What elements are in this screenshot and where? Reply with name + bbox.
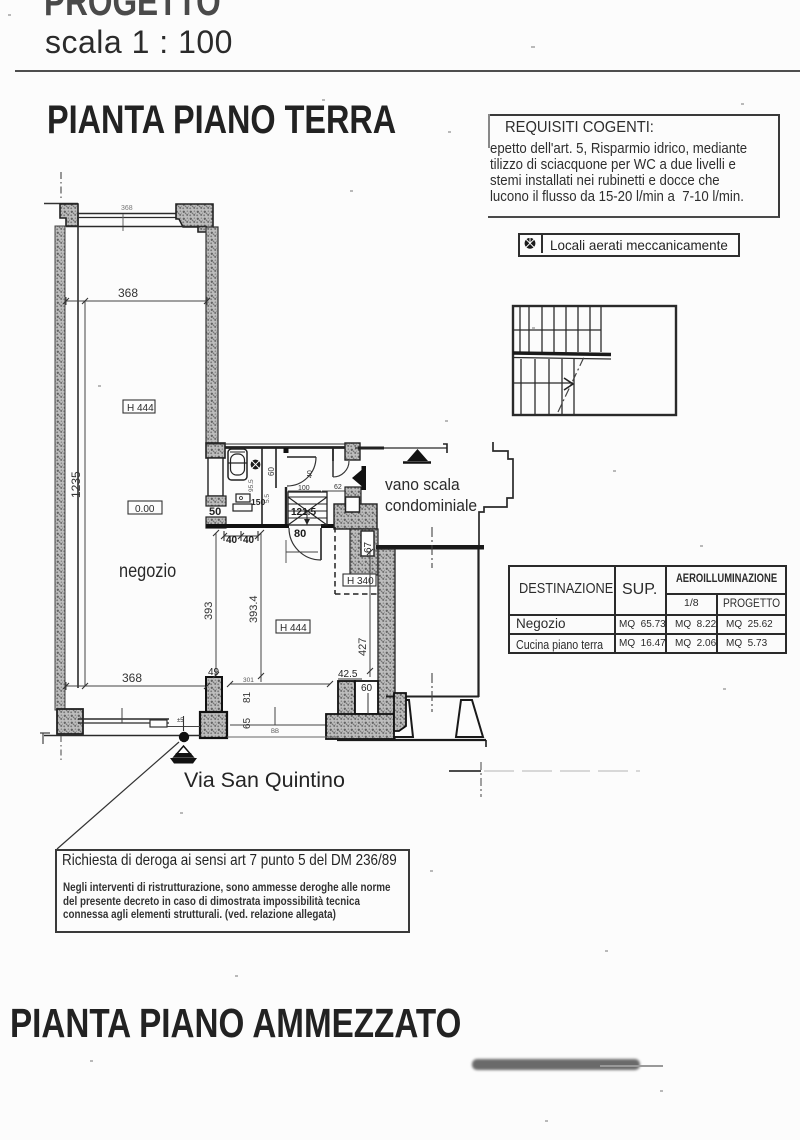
svg-text:368: 368 xyxy=(121,205,133,212)
svg-text:393.4: 393.4 xyxy=(248,595,260,623)
svg-text:50: 50 xyxy=(209,506,221,518)
svg-text:condominiale: condominiale xyxy=(385,496,477,515)
svg-text:427: 427 xyxy=(357,638,369,656)
svg-text:301: 301 xyxy=(243,677,254,684)
svg-text:H 444: H 444 xyxy=(127,403,154,414)
svg-text:5.5: 5.5 xyxy=(264,494,271,503)
svg-text:40: 40 xyxy=(243,535,255,546)
svg-text:1235: 1235 xyxy=(69,471,83,498)
svg-text:67: 67 xyxy=(363,541,374,553)
svg-text:H 444: H 444 xyxy=(280,623,307,634)
svg-text:40: 40 xyxy=(226,535,238,546)
svg-text:vano scala: vano scala xyxy=(385,475,461,494)
svg-text:81: 81 xyxy=(242,691,253,703)
svg-text:±5: ±5 xyxy=(177,718,184,724)
svg-text:62: 62 xyxy=(334,484,342,491)
svg-text:negozio: negozio xyxy=(119,560,176,581)
svg-text:60: 60 xyxy=(267,467,276,476)
svg-text:42.5: 42.5 xyxy=(338,669,358,680)
svg-text:95.5: 95.5 xyxy=(248,479,255,492)
svg-text:0.00: 0.00 xyxy=(135,504,155,515)
svg-text:60: 60 xyxy=(361,683,373,694)
svg-text:40: 40 xyxy=(307,470,314,478)
svg-text:BB: BB xyxy=(271,729,279,735)
svg-text:368: 368 xyxy=(122,671,142,685)
svg-text:65: 65 xyxy=(242,717,253,729)
svg-text:121.5: 121.5 xyxy=(291,507,316,518)
svg-text:80: 80 xyxy=(294,528,306,540)
svg-text:368: 368 xyxy=(118,286,138,300)
svg-text:393: 393 xyxy=(203,602,215,620)
